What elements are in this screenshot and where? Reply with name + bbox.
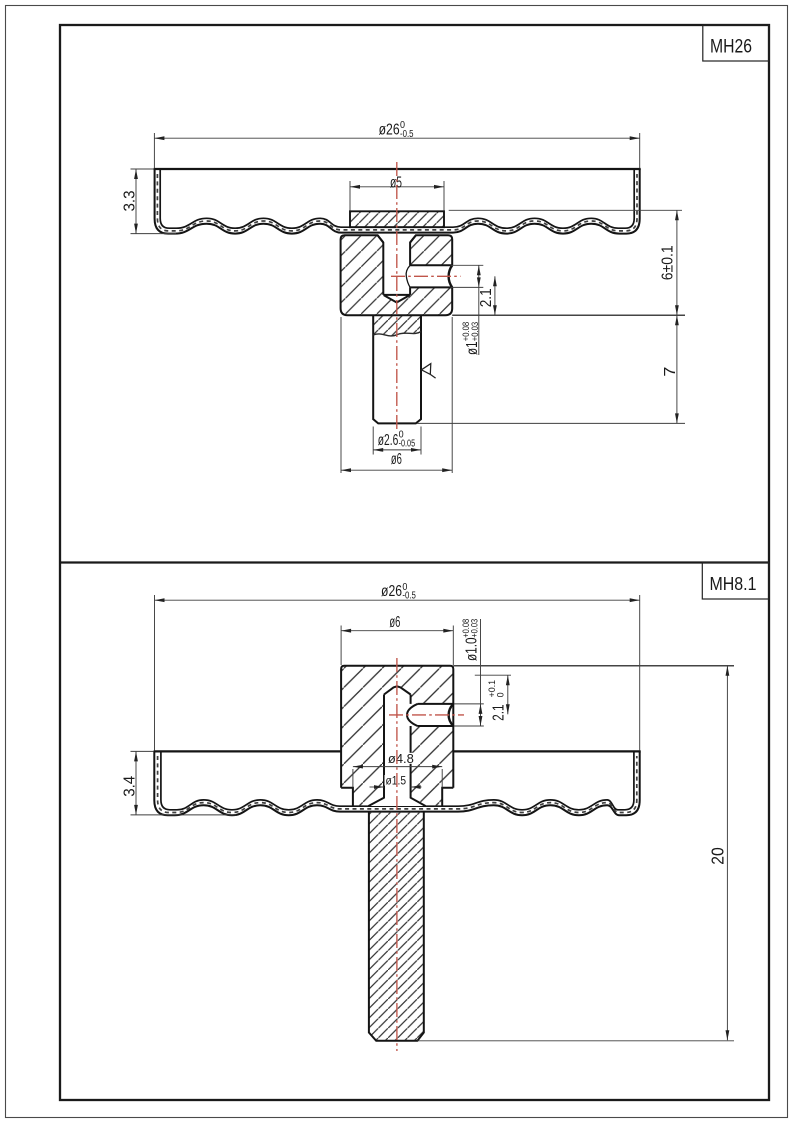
svg-text:ø6: ø6 xyxy=(389,614,400,631)
svg-text:ø5: ø5 xyxy=(390,174,402,191)
svg-text:ø2.6: ø2.6 xyxy=(378,432,399,449)
svg-text:+0.03: +0.03 xyxy=(470,619,481,638)
svg-text:0: 0 xyxy=(496,692,507,697)
svg-text:2.1: 2.1 xyxy=(491,704,508,721)
svg-text:ø1.0: ø1.0 xyxy=(463,637,480,661)
svg-text:+0.03: +0.03 xyxy=(470,322,481,342)
svg-text:7: 7 xyxy=(662,367,679,377)
svg-text:ø26: ø26 xyxy=(381,583,402,600)
svg-text:3.3: 3.3 xyxy=(121,191,138,212)
svg-text:ø1.5: ø1.5 xyxy=(386,773,407,787)
svg-text:6±0.1: 6±0.1 xyxy=(660,245,677,280)
svg-text:ø26: ø26 xyxy=(379,121,400,138)
svg-text:ø6: ø6 xyxy=(391,451,402,468)
svg-text:3.4: 3.4 xyxy=(121,775,138,796)
svg-text:20: 20 xyxy=(707,847,727,865)
svg-text:ø1: ø1 xyxy=(464,342,481,356)
svg-text:ø4.8: ø4.8 xyxy=(388,752,414,766)
svg-text:2.1: 2.1 xyxy=(478,288,495,307)
svg-text:-0.05: -0.05 xyxy=(399,439,416,450)
svg-text:-0.5: -0.5 xyxy=(402,590,416,601)
svg-text:MH26: MH26 xyxy=(710,36,752,57)
svg-text:MH8.1: MH8.1 xyxy=(710,573,757,594)
svg-text:-0.5: -0.5 xyxy=(400,129,414,140)
